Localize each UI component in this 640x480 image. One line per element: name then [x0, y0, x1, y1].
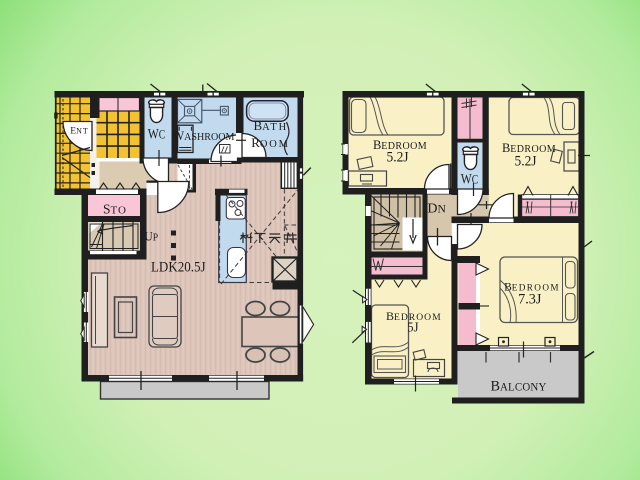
svg-text:BALCONY: BALCONY — [490, 378, 546, 394]
svg-text:ENT: ENT — [70, 127, 88, 137]
svg-text:WC: WC — [148, 125, 166, 142]
svg-text:WC: WC — [461, 170, 479, 187]
svg-text:5J: 5J — [407, 319, 418, 335]
svg-text:WASHROOM: WASHROOM — [173, 129, 235, 143]
svg-text:DN: DN — [427, 202, 448, 217]
svg-text:5.2J: 5.2J — [514, 153, 537, 170]
svg-text:7.3J: 7.3J — [518, 291, 542, 307]
svg-text:LDK20.5J: LDK20.5J — [151, 258, 206, 275]
svg-text:UP: UP — [145, 229, 159, 244]
svg-text:5.2J: 5.2J — [386, 149, 409, 166]
svg-text:STO: STO — [103, 202, 127, 217]
